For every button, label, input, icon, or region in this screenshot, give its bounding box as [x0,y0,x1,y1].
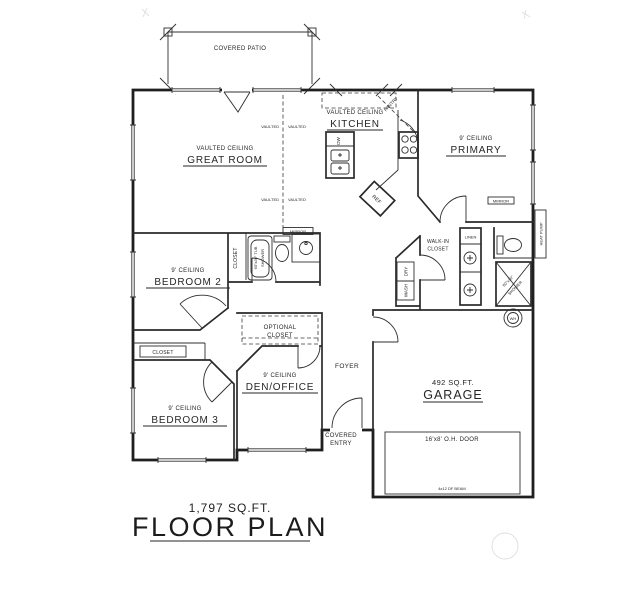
refrigerator-icon: REF [360,181,395,215]
closet-bedroom2-label: CLOSET [233,247,239,268]
garage-sqft-label: 492 SQ.FT. [432,378,474,387]
plan-title: FLOOR PLAN [132,512,328,542]
ceiling-note-bedroom3: 9' CEILING [168,406,201,412]
den-door-swing [298,346,320,368]
laundry: DRY WASH [397,262,414,300]
vaulted-note: VAULTED [261,124,279,129]
vaulted-note: VAULTED [288,124,306,129]
dishwasher-label: DW [336,137,341,145]
mirror-label: MIRROR [290,229,306,234]
window-icon [529,162,537,204]
heat-pump: HEAT PUMP [535,210,546,258]
room-label-covered-entry: ENTRY [330,441,352,447]
kitchen-island: DW [326,132,354,178]
bedroom3-closet: CLOSET [140,346,186,357]
primary-door-swing [440,196,466,222]
room-label-primary: PRIMARY [451,145,502,156]
room-label-foyer: FOYER [335,363,359,370]
water-heater-icon: WH [504,309,522,327]
room-label-bedroom2: BEDROOM 2 [154,277,221,288]
bedroom2-door-swing [180,295,226,328]
ceiling-note-kitchen: VAULTED CEILING [327,110,384,116]
tub-label: 60"x36" TUB [253,246,258,269]
patio-door-swing [222,86,252,112]
sink-icon [292,234,320,262]
window-icon [172,86,220,94]
ceiling-note-bedroom2: 9' CEILING [171,268,204,274]
room-label-covered-entry: COVERED [325,433,357,439]
optional-closet: OPTIONAL CLOSET [242,316,318,344]
vaulted-note: VAULTED [261,197,279,202]
vanity: LINEN [460,228,481,305]
window-icon [129,252,137,297]
room-label-garage: GARAGE [423,388,483,402]
front-door-swing [330,398,362,434]
garage-overhead-door: 16'x8' O.H. DOOR 4x12 DF BEAM [385,432,520,494]
heat-pump-label: HEAT PUMP [539,222,544,245]
ceiling-note-great-room: VAULTED CEILING [197,146,254,152]
doors [180,86,466,434]
ceiling-note-den: 9' CEILING [263,373,296,379]
pantry-door-swing [400,120,418,142]
window-icon [158,456,206,464]
room-labels: VAULTED CEILING GREAT ROOM VAULTED CEILI… [143,110,506,447]
water-heater-label: WH [510,316,517,321]
washer-label: WASH [404,284,409,297]
range-icon [399,132,418,158]
window-icon [129,388,137,433]
walkin-closet-label: CLOSET [427,247,448,253]
window-icon [529,105,537,150]
garage-door-swing [373,317,398,342]
closet-bedroom3-label: CLOSET [152,350,173,356]
primary-bath: WALK-IN CLOSET LINEN MIRROR 60"x30" SHOW… [427,197,546,327]
dryer-label: DRY [404,267,409,276]
room-label-great-room: GREAT ROOM [187,155,262,166]
refrigerator-label: REF [370,194,382,206]
window-icon [248,446,306,454]
ceiling-note-primary: 9' CEILING [459,136,492,142]
toilet-icon [274,236,290,262]
garage-door-label: 16'x8' O.H. DOOR [425,437,479,443]
window-icon [452,86,494,94]
walkin-closet-label: WALK-IN [427,239,449,245]
linen-label: LINEN [465,235,477,240]
room-label-den: DEN/OFFICE [246,382,315,393]
covered-patio: COVERED PATIO [160,24,320,94]
window-icon [253,86,301,94]
title-block: 1,797 SQ.FT. FLOOR PLAN [132,501,328,542]
floor-plan-drawing: COVERED PATIO [0,0,624,589]
optional-closet-label: CLOSET [267,333,293,339]
mirror-label: MIRROR [493,198,509,203]
toilet-icon [497,236,522,254]
walkin-door-swing [420,255,445,280]
vaulted-note: VAULTED [288,197,306,202]
vaulted-ridge: VAULTED VAULTED VAULTED VAULTED [261,95,306,228]
room-label-bedroom3: BEDROOM 3 [151,415,218,426]
tub-label: SHOWER [260,249,265,267]
covered-patio-label: COVERED PATIO [214,46,266,52]
room-label-kitchen: KITCHEN [330,119,380,130]
optional-closet-label: OPTIONAL [264,325,297,331]
floor-plan-page: COVERED PATIO [0,0,624,589]
window-icon [129,125,137,180]
mirror-callout: MIRROR [488,197,514,204]
shower-icon: 60"x30" SHOWER [496,262,531,306]
garage-beam-label: 4x12 DF BEAM [438,486,466,491]
